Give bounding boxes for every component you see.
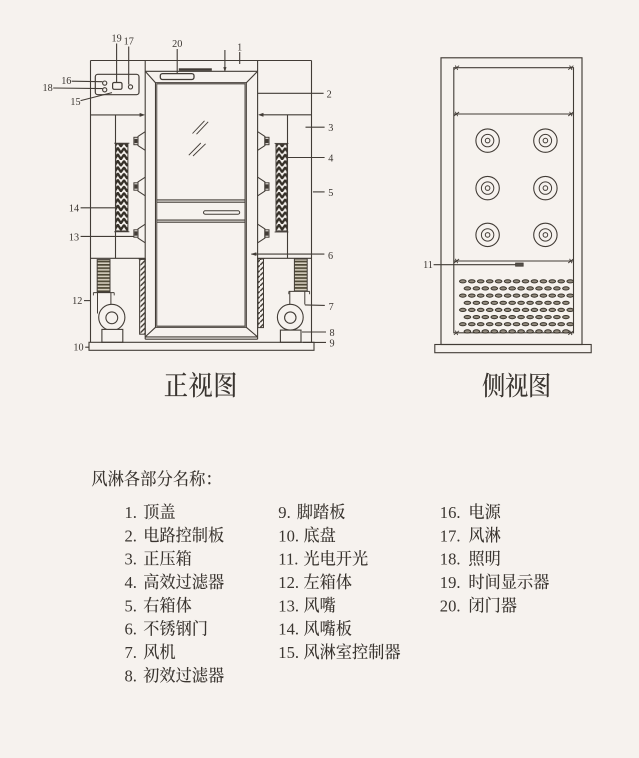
svg-text:3: 3	[328, 123, 333, 134]
svg-text:17.: 17.	[440, 526, 461, 545]
svg-text:1.: 1.	[125, 503, 137, 522]
svg-text:6: 6	[328, 251, 333, 262]
svg-text:16: 16	[61, 76, 71, 87]
svg-text:5: 5	[328, 188, 333, 199]
svg-text:18: 18	[43, 83, 53, 94]
svg-text:11.: 11.	[278, 550, 298, 569]
svg-text:11: 11	[423, 260, 433, 271]
svg-text:12.: 12.	[278, 573, 299, 592]
svg-text:15: 15	[70, 97, 80, 108]
svg-text:18.: 18.	[440, 550, 461, 569]
svg-text:20.: 20.	[440, 596, 461, 615]
svg-text:10: 10	[73, 342, 83, 353]
svg-text:16.: 16.	[440, 503, 461, 522]
svg-text:8.: 8.	[125, 666, 137, 685]
svg-text:3.: 3.	[125, 550, 137, 569]
svg-text:12: 12	[72, 296, 82, 307]
svg-text:2: 2	[327, 89, 332, 100]
svg-text:17: 17	[124, 37, 134, 48]
svg-text:1: 1	[237, 42, 242, 53]
svg-text:9: 9	[329, 339, 334, 350]
svg-text:6.: 6.	[125, 620, 137, 639]
svg-text:10.: 10.	[278, 526, 299, 545]
svg-text:5.: 5.	[125, 596, 137, 615]
svg-text:2.: 2.	[125, 526, 137, 545]
svg-text:13.: 13.	[278, 596, 299, 615]
svg-text:15.: 15.	[278, 643, 299, 662]
svg-text:20: 20	[172, 39, 182, 50]
svg-text:9.: 9.	[278, 503, 290, 522]
svg-text:14: 14	[69, 204, 79, 215]
svg-text:14.: 14.	[278, 620, 299, 639]
svg-text:13: 13	[69, 232, 79, 243]
svg-text:4: 4	[328, 154, 333, 165]
svg-text:8: 8	[329, 328, 334, 339]
svg-text:19: 19	[112, 34, 122, 45]
svg-text:7.: 7.	[125, 643, 137, 662]
svg-text:7: 7	[329, 302, 334, 313]
svg-text:4.: 4.	[125, 573, 137, 592]
svg-text:19.: 19.	[440, 573, 461, 592]
